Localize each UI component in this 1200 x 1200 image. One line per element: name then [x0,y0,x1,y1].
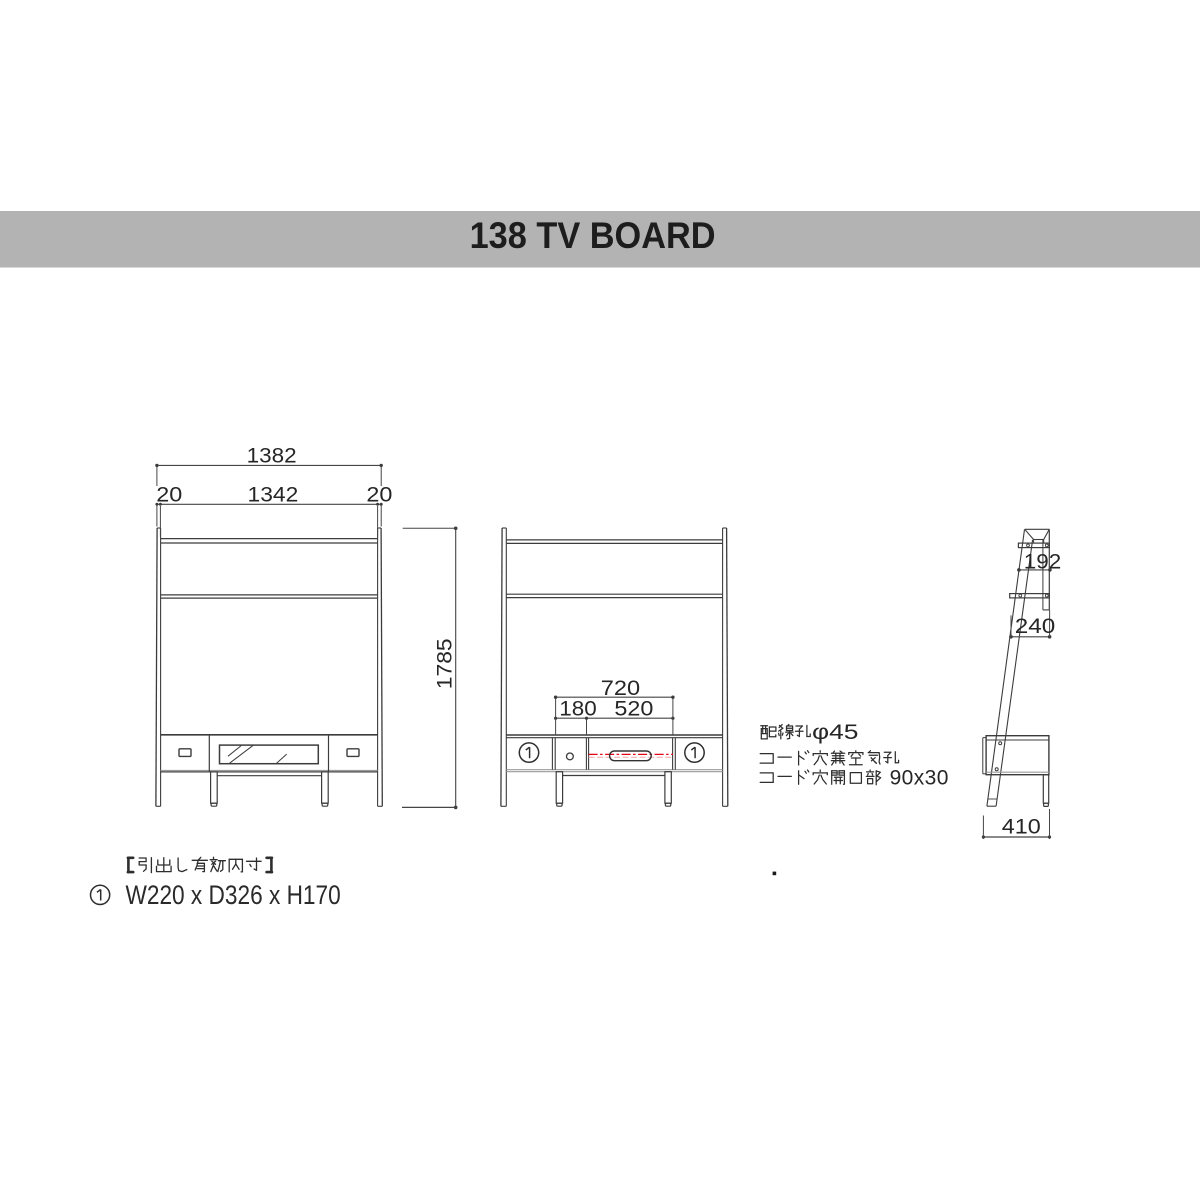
svg-text:240: 240 [1015,615,1056,638]
svg-text:180: 180 [559,697,596,720]
svg-text:1342: 1342 [248,484,299,507]
svg-text:138 TV BOARD: 138 TV BOARD [470,215,716,256]
svg-text:410: 410 [1002,815,1041,838]
svg-text:φ45: φ45 [812,721,859,744]
svg-text:520: 520 [614,697,653,720]
svg-text:W220 x D326 x H170: W220 x D326 x H170 [126,880,341,910]
svg-text:192: 192 [1024,550,1062,573]
svg-text:90x30: 90x30 [890,767,949,790]
svg-text:1382: 1382 [247,445,297,468]
svg-text:20: 20 [156,484,182,507]
svg-text:1785: 1785 [434,638,457,689]
svg-text:20: 20 [366,484,392,507]
